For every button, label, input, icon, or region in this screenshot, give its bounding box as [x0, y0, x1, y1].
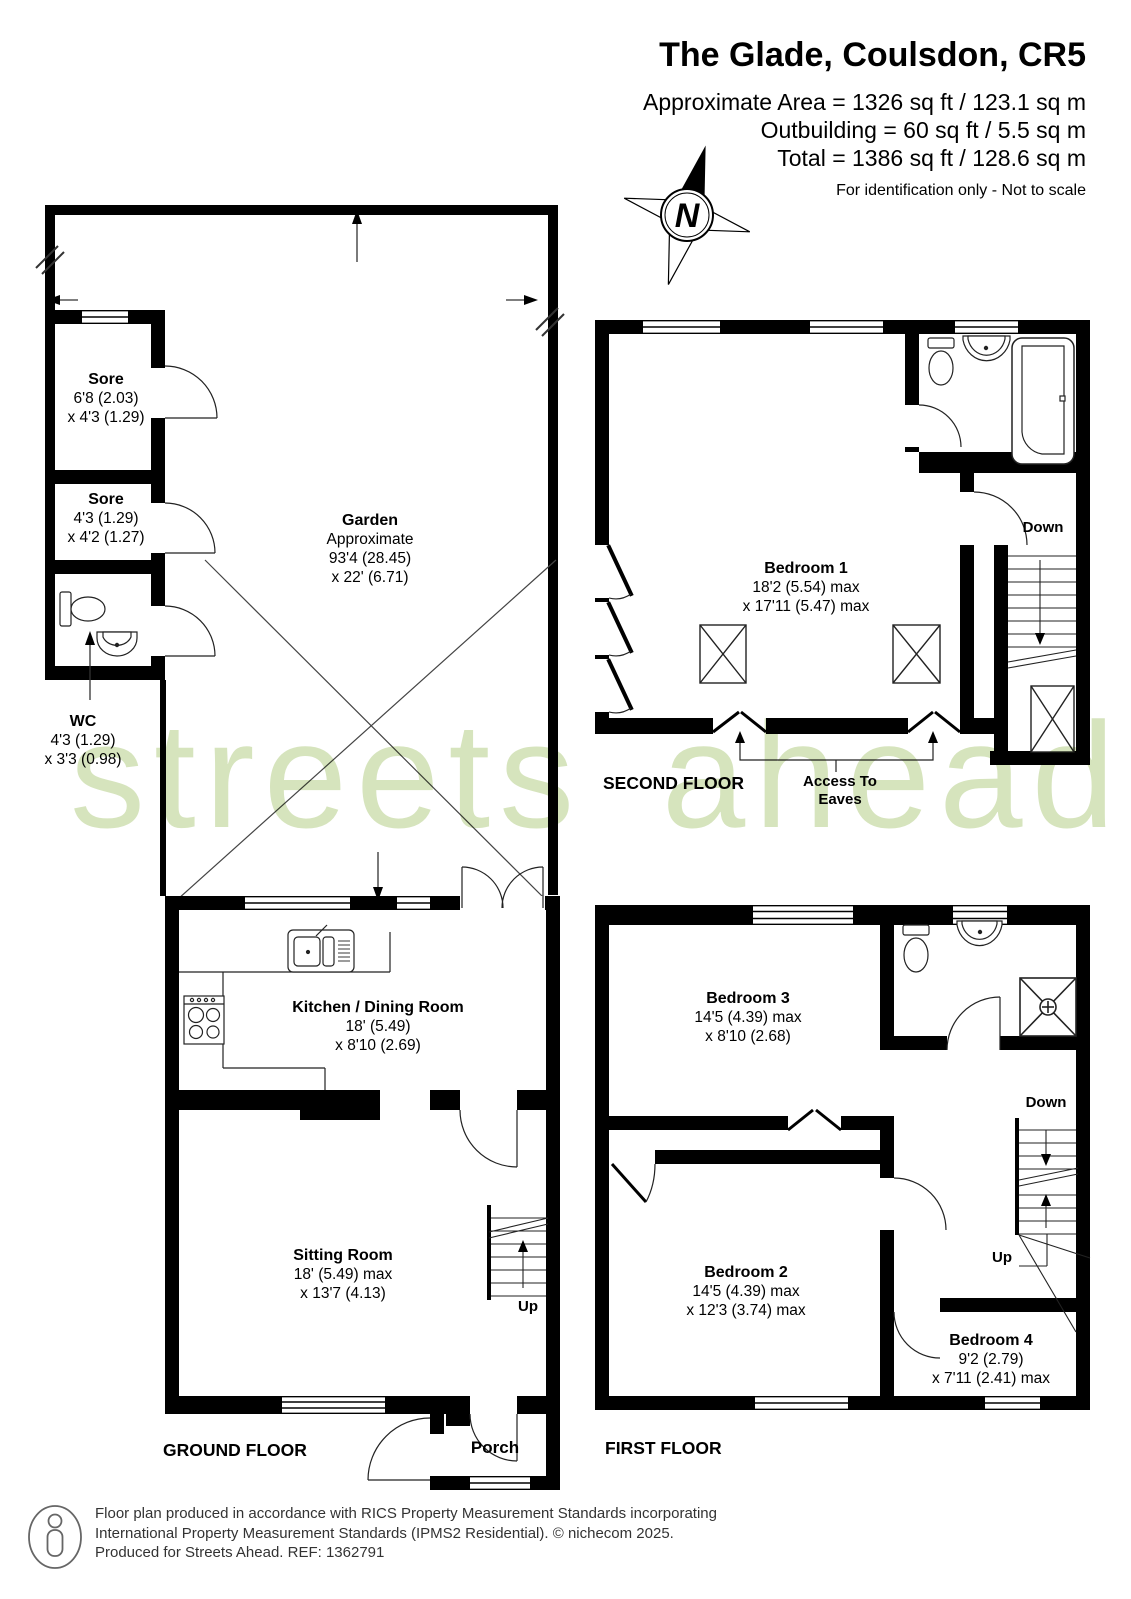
room-label-bedroom-3: Bedroom 3 14'5 (4.39) max x 8'10 (2.68) — [694, 989, 801, 1046]
scale-disclaimer: For identification only - Not to scale — [643, 182, 1086, 200]
hob-icon — [184, 996, 224, 1044]
basin-icon — [957, 921, 1002, 946]
second-floor-title: SECOND FLOOR — [603, 773, 744, 794]
room-label-wc: WC 4'3 (1.29) x 3'3 (0.98) — [44, 712, 121, 769]
second-floor-stairs — [1008, 556, 1076, 752]
stairs-down-label-first: Down — [1026, 1094, 1067, 1111]
room-label-garden: Garden Approximate 93'4 (28.45) x 22' (6… — [326, 511, 413, 587]
approximate-area: Approximate Area = 1326 sq ft / 123.1 sq… — [643, 88, 1086, 116]
room-label-bedroom-1: Bedroom 1 18'2 (5.54) max x 17'11 (5.47)… — [743, 559, 870, 616]
room-label-bedroom-4: Bedroom 4 9'2 (2.79) x 7'11 (2.41) max — [932, 1331, 1050, 1388]
second-floor-windows — [643, 320, 1018, 334]
room-label-store-1: Sore 6'8 (2.03) x 4'3 (1.29) — [67, 370, 144, 427]
first-floor-title: FIRST FLOOR — [605, 1438, 722, 1459]
toilet-bowl-icon — [904, 938, 928, 972]
access-to-eaves-label: Access To Eaves — [803, 773, 877, 809]
total-area: Total = 1386 sq ft / 128.6 sq m — [643, 144, 1086, 172]
room-label-sitting-room: Sitting Room 18' (5.49) max x 13'7 (4.13… — [293, 1246, 393, 1303]
outbuilding-doors — [165, 366, 217, 656]
toilet-bowl-icon — [929, 351, 953, 385]
room-label-kitchen: Kitchen / Dining Room 18' (5.49) x 8'10 … — [292, 998, 464, 1055]
room-label-bedroom-2: Bedroom 2 14'5 (4.39) max x 12'3 (3.74) … — [686, 1263, 805, 1320]
garden-walls — [45, 205, 558, 896]
room-label-porch: Porch — [471, 1438, 519, 1457]
stairs-down-label-second: Down — [1023, 519, 1064, 536]
nichecom-person-icon — [29, 1506, 81, 1568]
ground-floor-title: GROUND FLOOR — [163, 1440, 307, 1461]
ground-floor-doors — [368, 867, 543, 1480]
rooflight-icon — [1031, 686, 1074, 752]
header: The Glade, Coulsdon, CR5 Approximate Are… — [643, 36, 1086, 200]
outbuilding-area: Outbuilding = 60 sq ft / 5.5 sq m — [643, 116, 1086, 144]
bath-icon — [1012, 338, 1074, 464]
first-floor-bathroom-fixtures — [903, 921, 1076, 1036]
floorplan-page: N — [0, 0, 1131, 1599]
garden-windows — [82, 310, 128, 324]
room-label-store-2: Sore 4'3 (1.29) x 4'2 (1.27) — [67, 490, 144, 547]
stairs-up-label-ground: Up — [518, 1298, 538, 1315]
page-title: The Glade, Coulsdon, CR5 — [643, 36, 1086, 74]
footer-disclaimer: Floor plan produced in accordance with R… — [95, 1504, 717, 1563]
compass-north-letter: N — [675, 197, 701, 235]
toilet-cistern-icon — [60, 592, 71, 626]
toilet-bowl-icon — [71, 597, 105, 621]
eaves-cupboard-doors — [595, 545, 631, 713]
stairs-up-label-first: Up — [992, 1249, 1012, 1266]
wc-fixtures — [60, 592, 137, 656]
toilet-cistern-icon — [928, 338, 954, 348]
shower-icon — [1020, 978, 1076, 1036]
second-floor-bathroom-fixtures — [928, 336, 1074, 464]
toilet-cistern-icon — [903, 925, 929, 935]
basin-icon — [963, 336, 1010, 361]
bedroom1-rooflights — [700, 625, 940, 683]
ground-floor-stairs — [487, 1205, 548, 1300]
garden-diagonal-lines — [168, 560, 558, 912]
